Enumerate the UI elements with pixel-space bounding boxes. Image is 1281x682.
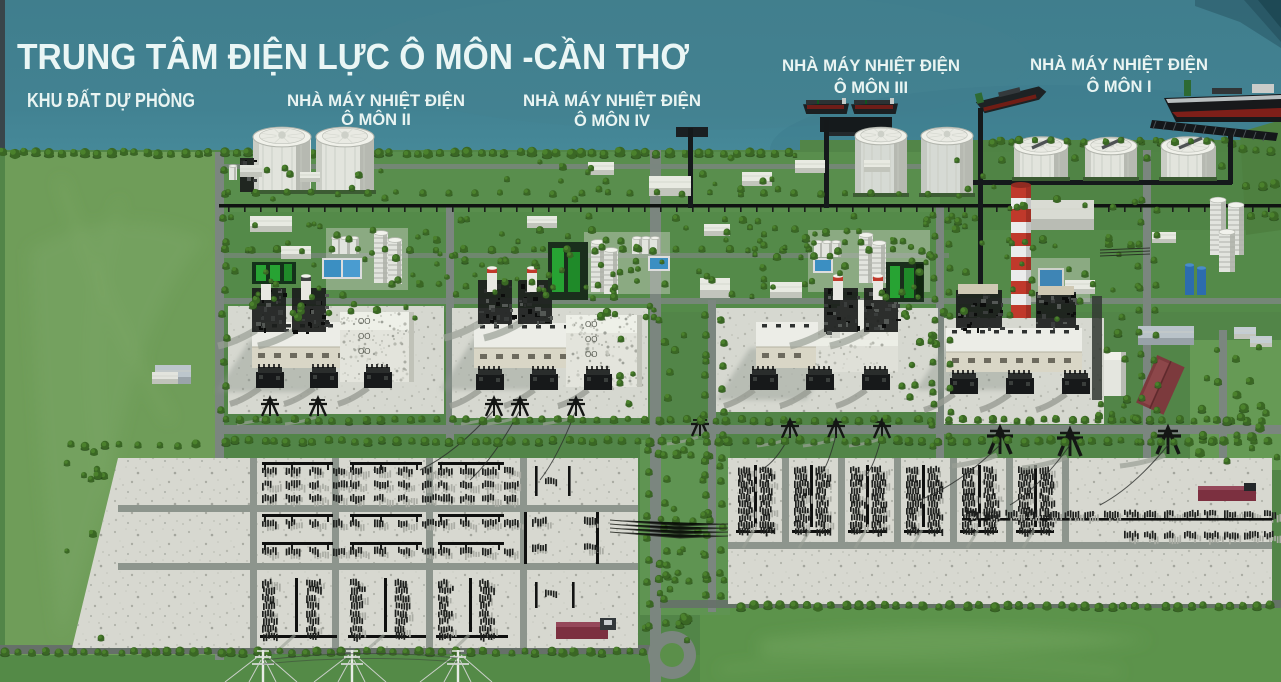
- svg-text:OO: OO: [358, 347, 370, 356]
- svg-text:OO: OO: [358, 332, 370, 341]
- svg-text:OO: OO: [585, 350, 597, 359]
- svg-text:OO: OO: [585, 335, 597, 344]
- svg-text:OO: OO: [585, 320, 597, 329]
- svg-text:OO: OO: [358, 317, 370, 326]
